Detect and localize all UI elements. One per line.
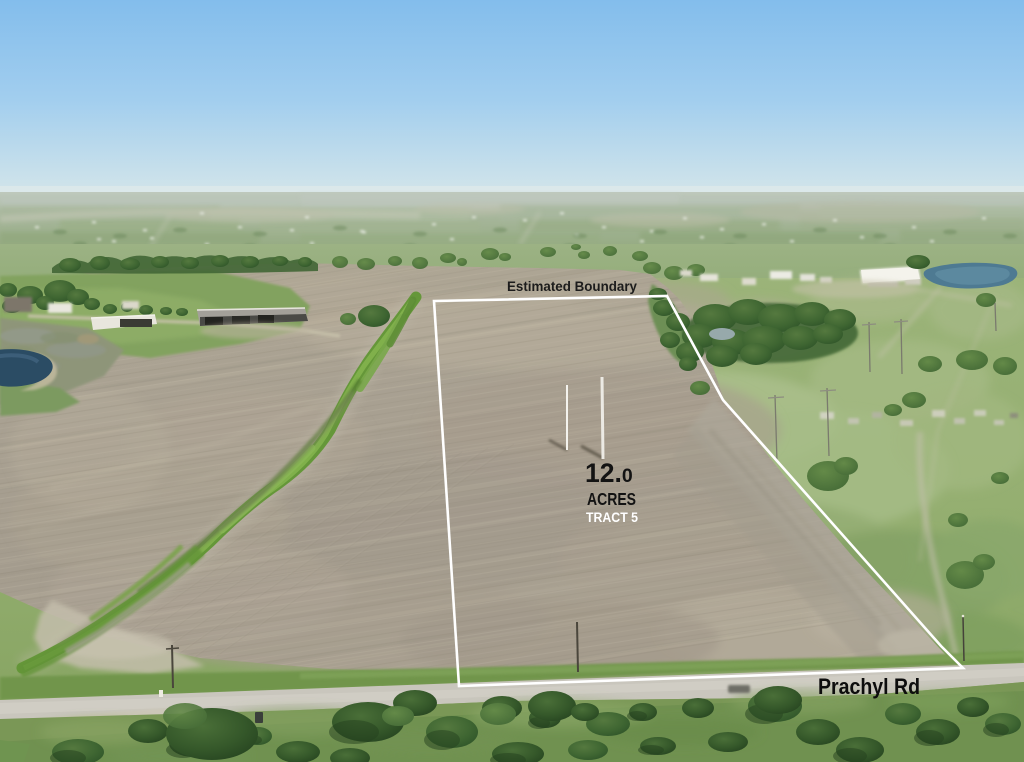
svg-text:TRACT 5: TRACT 5: [586, 510, 638, 525]
svg-text:Prachyl Rd: Prachyl Rd: [818, 674, 920, 699]
svg-text:Estimated Boundary: Estimated Boundary: [507, 279, 637, 294]
svg-text:ACRES: ACRES: [587, 489, 636, 509]
